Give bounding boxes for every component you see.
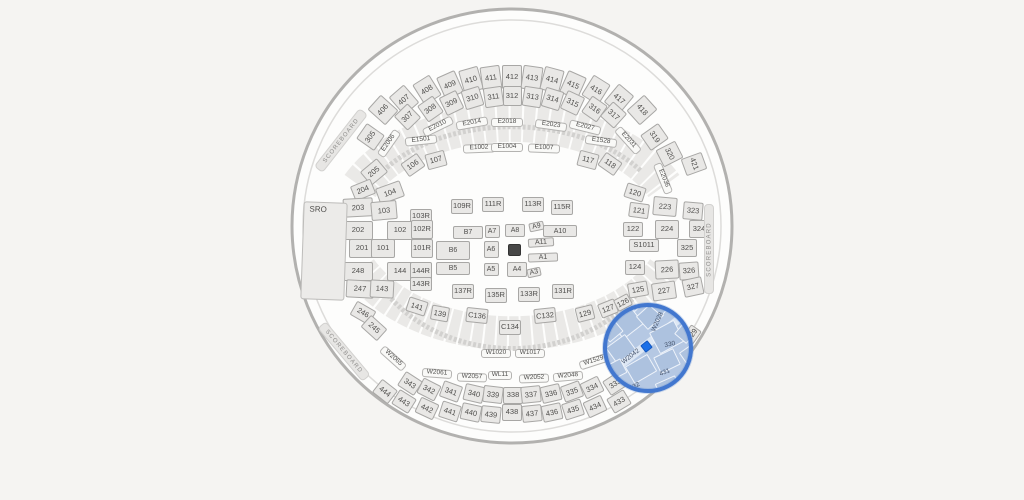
section-s1011[interactable]: S1011: [629, 239, 659, 252]
walkway-section-w2061[interactable]: W2061: [422, 367, 453, 378]
section-312[interactable]: 312: [503, 86, 522, 106]
seat-map-canvas[interactable]: 4064074084094104114124134144154164174183…: [0, 0, 1024, 500]
walkway-section-e1004[interactable]: E1004: [491, 143, 523, 152]
section-330-label: 330: [660, 338, 680, 352]
section-c132[interactable]: C132: [533, 306, 556, 323]
walkway-section-w2052[interactable]: W2052: [519, 373, 549, 383]
section-c134[interactable]: C134: [499, 320, 521, 335]
section-224[interactable]: 224: [655, 220, 679, 239]
section-313[interactable]: 313: [521, 86, 543, 109]
section-202[interactable]: 202: [343, 221, 373, 240]
section-143[interactable]: 143: [370, 279, 395, 298]
sections-layer: 4064074084094104114124134144154164174183…: [0, 0, 1024, 500]
highlighted-section-shape[interactable]: [679, 344, 693, 366]
section-120[interactable]: 120: [623, 182, 647, 202]
section-117[interactable]: 117: [576, 150, 599, 171]
walkway-section-e1501[interactable]: E1501: [405, 134, 438, 146]
section-b6[interactable]: B6: [436, 241, 470, 260]
section-226[interactable]: 226: [655, 259, 680, 279]
walkway-section-e2014[interactable]: E2014: [455, 116, 488, 130]
section-325[interactable]: 325: [677, 239, 697, 257]
section-101[interactable]: 101: [371, 239, 395, 258]
section-129[interactable]: 129: [574, 304, 595, 323]
walkway-section-w2065[interactable]: W2065: [379, 345, 407, 372]
section-432-label: 432: [625, 378, 646, 393]
section-c136[interactable]: C136: [465, 306, 488, 323]
walkway-section-e2031[interactable]: E2031: [614, 125, 642, 155]
section-a7[interactable]: A7: [485, 225, 500, 238]
section-a3[interactable]: A3: [526, 266, 542, 278]
section-125[interactable]: 125: [627, 280, 649, 298]
section-107[interactable]: 107: [424, 150, 447, 171]
walkway-section-w1017[interactable]: W1017: [515, 349, 545, 358]
section-124[interactable]: 124: [625, 260, 645, 275]
section-111r[interactable]: 111R: [482, 197, 504, 212]
walkway-section-e2023[interactable]: E2023: [535, 118, 568, 131]
section-139[interactable]: 139: [430, 304, 450, 322]
section-sro[interactable]: SRO: [300, 201, 347, 300]
section-336[interactable]: 336: [539, 382, 562, 403]
section-a9[interactable]: A9: [528, 220, 545, 232]
section-102r[interactable]: 102R: [411, 220, 433, 239]
section-a11[interactable]: A11: [528, 237, 555, 248]
zoom-highlight-area[interactable]: W2028W2042330431432: [603, 303, 693, 393]
section-439[interactable]: 439: [480, 405, 502, 424]
walkway-section-w1020[interactable]: W1020: [481, 349, 511, 358]
section-227[interactable]: 227: [651, 280, 677, 301]
section-436[interactable]: 436: [540, 402, 563, 423]
walkway-section-w2057[interactable]: W2057: [457, 372, 487, 382]
section-a5[interactable]: A5: [484, 263, 499, 276]
walkway-section-e1528[interactable]: E1528: [585, 134, 618, 147]
stage: [508, 244, 521, 256]
section-223[interactable]: 223: [652, 195, 678, 216]
section-440[interactable]: 440: [459, 402, 482, 423]
section-b7[interactable]: B7: [453, 226, 483, 239]
section-248[interactable]: 248: [343, 262, 373, 281]
section-109r[interactable]: 109R: [451, 199, 473, 214]
walkway-section-e1007[interactable]: E1007: [528, 143, 560, 153]
section-103[interactable]: 103: [370, 199, 398, 220]
section-311[interactable]: 311: [482, 86, 504, 108]
section-327[interactable]: 327: [681, 276, 704, 298]
section-115r[interactable]: 115R: [551, 200, 573, 215]
section-441[interactable]: 441: [438, 400, 462, 422]
section-131r[interactable]: 131R: [552, 284, 574, 299]
section-341[interactable]: 341: [439, 380, 464, 403]
section-122[interactable]: 122: [623, 222, 643, 237]
section-135r[interactable]: 135R: [485, 288, 507, 303]
section-442[interactable]: 442: [414, 396, 439, 420]
section-106[interactable]: 106: [400, 153, 426, 178]
section-337[interactable]: 337: [520, 385, 542, 404]
section-121[interactable]: 121: [628, 201, 650, 219]
section-323[interactable]: 323: [682, 201, 703, 221]
section-b5[interactable]: B5: [436, 262, 470, 275]
section-a4[interactable]: A4: [507, 262, 527, 277]
section-a1[interactable]: A1: [528, 252, 558, 262]
walkway-section-w2048[interactable]: W2048: [553, 370, 584, 382]
section-101r[interactable]: 101R: [411, 239, 433, 258]
section-133r[interactable]: 133R: [518, 287, 540, 302]
scoreboard-label: SCOREBOARD: [317, 321, 370, 382]
section-339[interactable]: 339: [482, 384, 504, 403]
section-437[interactable]: 437: [521, 404, 543, 423]
section-137r[interactable]: 137R: [452, 284, 474, 299]
section-102[interactable]: 102: [387, 221, 413, 240]
walkway-section-wl11[interactable]: WL11: [488, 371, 512, 380]
section-118[interactable]: 118: [597, 152, 623, 177]
section-143r[interactable]: 143R: [410, 277, 432, 291]
section-421[interactable]: 421: [681, 152, 708, 176]
section-141[interactable]: 141: [405, 296, 429, 316]
section-113r[interactable]: 113R: [522, 197, 544, 212]
section-a10[interactable]: A10: [543, 225, 577, 237]
walkway-section-e2018[interactable]: E2018: [491, 118, 523, 127]
section-a8[interactable]: A8: [505, 224, 525, 237]
section-438[interactable]: 438: [502, 404, 522, 421]
scoreboard-label: SCOREBOARD: [704, 204, 715, 294]
walkway-section-e2036[interactable]: E2036: [653, 161, 673, 194]
section-a6[interactable]: A6: [484, 241, 499, 258]
